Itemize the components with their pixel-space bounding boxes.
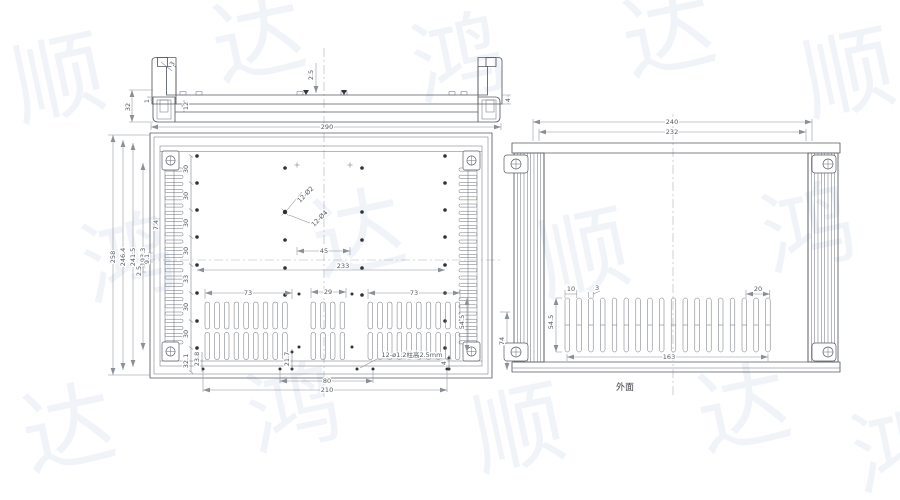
- vent-slot: [436, 302, 441, 329]
- vent-slot: [407, 302, 412, 329]
- hole-dot: [443, 319, 447, 323]
- hole-dot: [283, 293, 287, 297]
- vent-slot: [321, 302, 326, 329]
- cross-mark: [347, 162, 352, 167]
- hole-dot: [372, 368, 375, 371]
- hole-dot: [195, 319, 199, 323]
- hole-dot: [195, 181, 199, 185]
- dim-label-lv-233: 233: [337, 262, 349, 270]
- watermark-glyph: 达: [687, 348, 799, 472]
- dim-label-rv-545: 54.5: [547, 315, 555, 329]
- hole-dot: [298, 293, 301, 296]
- dim-label-lv-2464: 246.4: [119, 248, 127, 267]
- dim-label-ts-12: 12: [182, 102, 190, 110]
- vent-slot: [368, 333, 373, 360]
- weld-triangle: [341, 90, 347, 95]
- watermark-glyph: 顺: [462, 368, 574, 492]
- dim-label-ts-32: 32: [124, 103, 132, 111]
- vent-slot: [244, 302, 249, 329]
- vent-slot: [244, 333, 249, 360]
- hole-dot: [283, 266, 287, 270]
- dim-label-rv-10: 10: [567, 285, 575, 293]
- dim-label-sp-2: 30: [182, 192, 190, 200]
- marked-hole-dot: [283, 210, 287, 214]
- vent-slot: [263, 333, 268, 360]
- vent-slot: [224, 333, 229, 360]
- dim-label-sp-3: 30: [182, 219, 190, 227]
- dim-label-rv-163: 163: [663, 353, 675, 361]
- vent-slot: [446, 333, 451, 360]
- hole-dot: [443, 181, 447, 185]
- hole-dot: [443, 208, 447, 212]
- dim-label-lv-210: 210: [321, 386, 333, 394]
- dim-label-sp-7: 30: [182, 330, 190, 338]
- dim-label-lv-545: 54.5: [458, 315, 466, 329]
- hole-dot: [195, 235, 199, 239]
- vent-slot: [378, 302, 383, 329]
- hole-dot: [360, 166, 364, 170]
- vent-slot: [205, 333, 210, 360]
- cad-drawing-page: 顺达鸿达顺鸿达顺鸿达鸿顺达鸿: [0, 0, 900, 500]
- dim-label-lv-4: 4: [440, 361, 448, 365]
- dim-label-lv-25: 2.5: [135, 266, 143, 276]
- dim-label-ts-1: 1: [143, 99, 151, 103]
- vent-slot: [417, 302, 422, 329]
- vent-slot: [397, 302, 402, 329]
- hole-dot: [360, 266, 364, 270]
- vent-slot: [330, 302, 335, 329]
- watermark-glyph: 达: [302, 173, 414, 297]
- dim-label-lv-74b: 74: [498, 337, 506, 345]
- hole-dot: [360, 210, 364, 214]
- vent-slot: [205, 302, 210, 329]
- left-fin-column: [517, 153, 540, 362]
- dim-label-sp-1: 30: [182, 165, 190, 173]
- watermark-glyph: 达: [202, 0, 314, 102]
- hole-dot: [298, 346, 301, 349]
- hole-dot: [195, 263, 199, 267]
- hole-dot: [356, 368, 359, 371]
- dim-label-lv-258: 258: [109, 251, 117, 263]
- hole-dot: [195, 346, 199, 350]
- vent-slot: [273, 333, 278, 360]
- watermark-glyph: 顺: [2, 18, 114, 142]
- dim-label-lv-321: 32.1: [182, 354, 190, 368]
- dim-label-lv-29: 29: [324, 288, 332, 296]
- watermark-glyph: 达: [612, 0, 724, 97]
- hole-dot: [443, 346, 447, 350]
- vent-slot: [224, 302, 229, 329]
- dim-label-sp-6: 30: [182, 303, 190, 311]
- hole-dot: [195, 208, 199, 212]
- dim-label-lv-2415: 241.5: [129, 248, 137, 267]
- weld-triangle: [303, 90, 309, 95]
- outer-face-caption: 外面: [616, 381, 634, 393]
- dim-label-lv-post: 12-ø1.2柱高2.5mm: [382, 350, 443, 359]
- watermark-glyph: 鸿: [752, 168, 864, 292]
- dim-label-rv-3: 3: [595, 284, 599, 292]
- watermark-glyph: 鸿: [842, 388, 900, 500]
- hole-dot: [351, 293, 354, 296]
- dim-label-rv-240: 240: [666, 118, 678, 126]
- vent-slot: [254, 302, 259, 329]
- hole-dot: [443, 154, 447, 158]
- dim-label-lv-91: 9.1: [143, 254, 151, 264]
- hole-dot: [195, 291, 199, 295]
- vent-slot: [340, 302, 345, 329]
- dim-label-lv-74a: 7.4: [152, 220, 160, 230]
- hole-dot: [283, 166, 287, 170]
- vent-slot: [234, 302, 239, 329]
- dim-label-lv-73b: 73: [410, 289, 418, 297]
- dim-label-lv-217: 21.7: [283, 352, 291, 366]
- hole-dot: [283, 238, 287, 242]
- hole-dot: [279, 368, 282, 371]
- dim-label-ts-4: 4: [504, 98, 512, 102]
- hole-dot: [443, 263, 447, 267]
- vent-slot: [426, 302, 431, 329]
- dim-label-rv-20: 20: [754, 285, 762, 293]
- vent-slot: [311, 302, 316, 329]
- hole-dot: [351, 346, 354, 349]
- hole-dot: [195, 154, 199, 158]
- vent-slot: [330, 333, 335, 360]
- vent-slot: [215, 333, 220, 360]
- dim-label-sp-4: 30: [182, 247, 190, 255]
- dim-label-ts-290: 290: [321, 123, 333, 131]
- dim-label-rv-232: 232: [666, 128, 678, 136]
- vent-slot: [273, 302, 278, 329]
- dim-label-sp-5: 33: [182, 275, 190, 283]
- dim-label-lv-45: 45: [320, 247, 328, 255]
- vent-slot: [387, 302, 392, 329]
- vent-slot: [340, 333, 345, 360]
- dim-label-lv-238: 23.8: [193, 352, 201, 366]
- watermark-glyph: 顺: [792, 13, 900, 137]
- watermark-glyph: 鸿: [402, 0, 514, 122]
- watermark-glyph: 达: [12, 368, 124, 492]
- cross-mark: [294, 162, 299, 167]
- vent-slot: [254, 333, 259, 360]
- dim-label-ts-25: 2.5: [307, 70, 315, 80]
- watermark-glyph: 鸿: [237, 348, 349, 472]
- hole-dot: [360, 293, 364, 297]
- vent-slot: [283, 302, 288, 329]
- cad-drawing: 顺达鸿达顺鸿达顺鸿达鸿顺达鸿: [0, 0, 900, 500]
- vent-slot: [446, 302, 451, 329]
- vent-slot: [368, 302, 373, 329]
- vent-slot: [215, 302, 220, 329]
- hole-dot: [443, 235, 447, 239]
- vent-slot: [234, 333, 239, 360]
- hole-dot: [360, 238, 364, 242]
- vent-slot: [263, 302, 268, 329]
- dim-label-lv-73a: 73: [244, 289, 252, 297]
- dim-label-lv-80: 80: [323, 377, 331, 385]
